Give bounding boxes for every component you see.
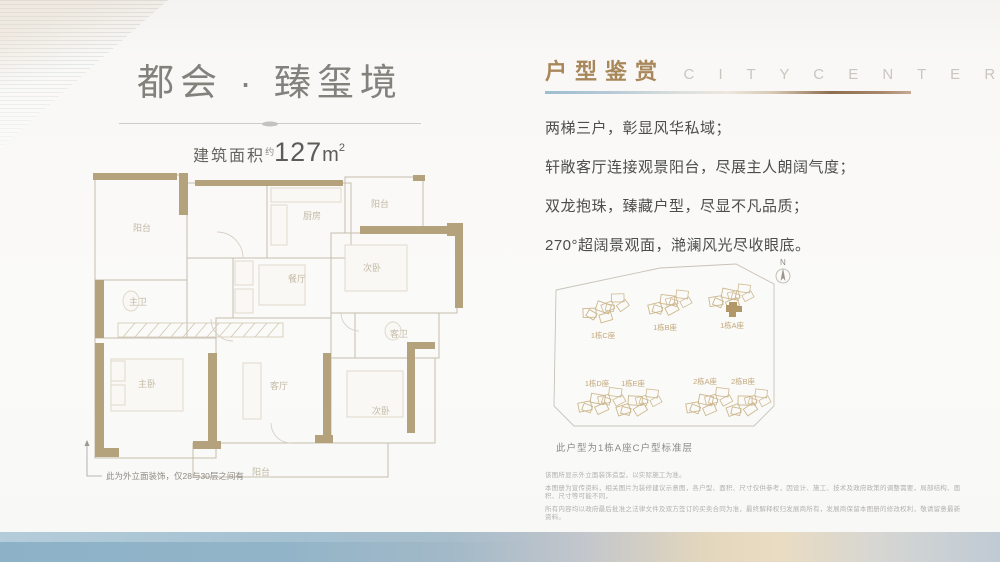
label-1A: 1栋A座: [720, 321, 744, 330]
label-1D: 1栋D座: [585, 379, 610, 388]
label-2B: 2栋B座: [731, 377, 755, 386]
building-outline: [581, 298, 616, 325]
wardrobe-hatch: [118, 323, 283, 337]
tagline-list: 两梯三户，彰显风华私域； 轩敞客厅连接观景阳台，尽展主人朗阔气度； 双龙抱珠，臻…: [545, 120, 965, 276]
room-label-guest-bath: 客卫: [390, 328, 408, 339]
site-plan: N 1栋C座 1栋B座 1栋A座 1栋D座 1栋E座 2栋A座 2栋B座: [540, 256, 792, 438]
building-outline: [685, 393, 718, 416]
disclaimer-line-3: 所有内容均以政府最后批准之法律文件及双方签订的买卖合同为准，最终解释权归发展商所…: [545, 506, 965, 523]
tagline-3: 双龙抱珠，臻藏户型，尽显不凡品质；: [545, 198, 965, 215]
label-2A: 2栋A座: [693, 377, 717, 386]
disclaimer-line-1: 该图所显示外立面装饰造型，以实际施工为准。: [545, 472, 965, 481]
label-1C: 1栋C座: [591, 331, 616, 340]
tagline-4: 270°超阔景观面，滟澜风光尽收眼底。: [545, 237, 965, 254]
siteplan-caption: 此户型为1栋A座C户型标准层: [556, 440, 693, 454]
footnote-text: 此为外立面装饰，仅28与30层之间有: [106, 471, 244, 481]
section-header: 户型鉴赏 C I T Y C E N T E R: [545, 54, 1000, 86]
area-approx: 约: [265, 147, 274, 157]
label-1E: 1栋E座: [621, 379, 645, 388]
section-title-en: C I T Y C E N T E R: [683, 66, 1000, 83]
bottom-gradient-band: [0, 532, 1000, 562]
leader-line: [87, 444, 102, 476]
room-label-dining: 餐厅: [288, 273, 306, 284]
divider-dot: [262, 121, 278, 126]
building-outline: [725, 394, 758, 418]
building-outline: [598, 387, 626, 406]
building-outline: [635, 389, 662, 407]
floorplan-footnote: 此为外立面装饰，仅28与30层之间有: [82, 432, 332, 484]
label-1B: 1栋B座: [653, 323, 677, 332]
building-outline: [744, 389, 771, 407]
room-label-living: 客厅: [270, 380, 288, 391]
building-labels: 1栋C座 1栋B座 1栋A座 1栋D座 1栋E座 2栋A座 2栋B座: [585, 321, 756, 388]
page-title: 都会 · 臻玺境: [40, 60, 500, 106]
disclaimer: 该图所显示外立面装饰造型，以实际施工为准。 本图册为宣传资料，相关图片为装修建议…: [545, 472, 965, 527]
north-label: N: [780, 258, 786, 267]
title-block: 都会 · 臻玺境 建筑面积约127m2: [40, 60, 500, 168]
north-compass-icon: N: [776, 258, 790, 283]
room-label-balcony-tl: 阳台: [133, 222, 151, 233]
room-label-kitchen: 厨房: [303, 210, 321, 221]
tagline-2: 轩敞客厅连接观景阳台，尽展主人朗阔气度；: [545, 159, 965, 176]
room-label-master-bath: 主卫: [129, 296, 147, 307]
room-label-master-bedroom: 主卧: [138, 378, 156, 389]
area-exponent: 2: [339, 142, 347, 154]
room-label-bedroom-right: 次卧: [363, 262, 381, 273]
room-label-balcony-tr: 阳台: [371, 198, 389, 209]
room-label-bedroom-br: 次卧: [372, 405, 390, 416]
disclaimer-line-2: 本图册为宣传资料，相关图片为装修建议示意图，各户型、面积、尺寸仅供参考，因设计、…: [545, 485, 965, 502]
title-divider: [119, 123, 421, 124]
tagline-1: 两梯三户，彰显风华私域；: [545, 120, 965, 137]
gradient-divider: [545, 91, 911, 94]
brochure-page: 都会 · 臻玺境 建筑面积约127m2: [0, 0, 1000, 562]
section-title-cn: 户型鉴赏: [545, 59, 665, 84]
building-outline: [705, 387, 733, 406]
